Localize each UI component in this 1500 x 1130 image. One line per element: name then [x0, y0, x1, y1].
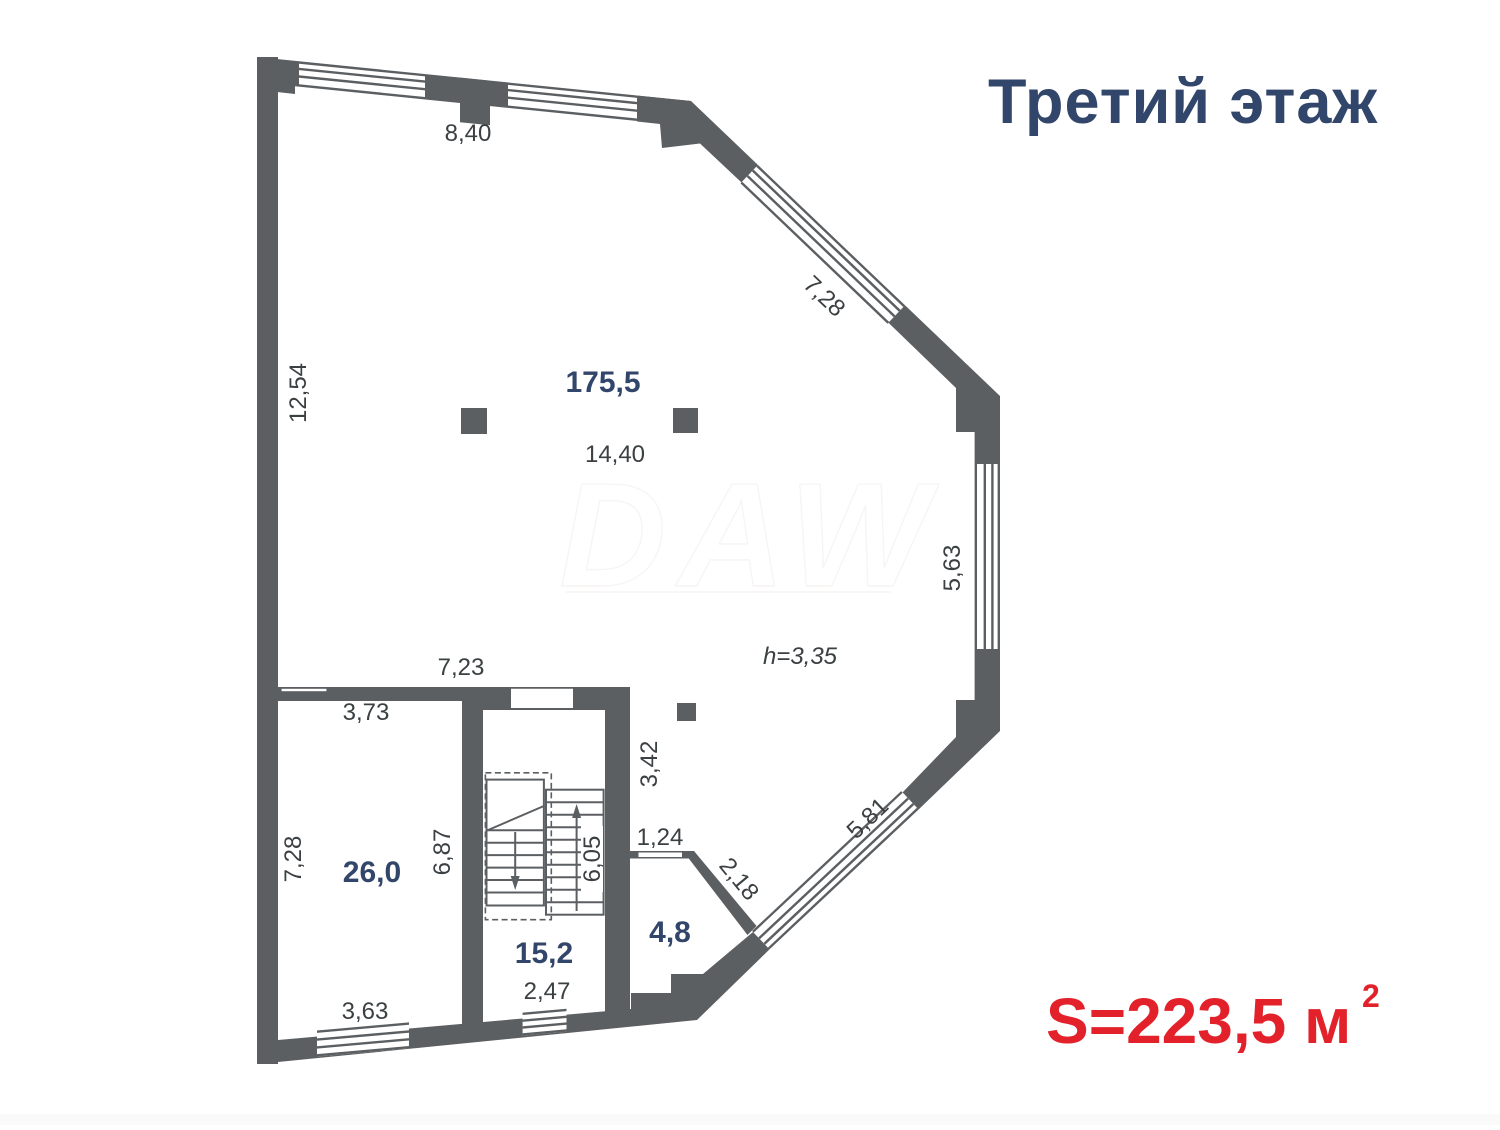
svg-text:h=3,35: h=3,35 [763, 643, 838, 670]
svg-text:175,5: 175,5 [565, 366, 640, 399]
svg-text:12,54: 12,54 [285, 363, 312, 423]
svg-text:S=223,5 м: S=223,5 м [1046, 985, 1351, 1057]
svg-text:3,63: 3,63 [342, 998, 389, 1025]
svg-text:7,23: 7,23 [438, 654, 485, 681]
svg-text:14,40: 14,40 [585, 441, 645, 468]
svg-text:Третий этаж: Третий этаж [988, 67, 1378, 137]
svg-text:2,47: 2,47 [524, 978, 571, 1005]
svg-text:2: 2 [1362, 978, 1380, 1014]
svg-text:DAW: DAW [559, 453, 940, 618]
svg-text:1,24: 1,24 [637, 824, 684, 851]
svg-text:6,87: 6,87 [429, 829, 456, 876]
svg-text:3,73: 3,73 [343, 699, 390, 726]
svg-text:26,0: 26,0 [343, 856, 401, 889]
svg-text:6,05: 6,05 [579, 836, 606, 883]
svg-text:8,40: 8,40 [445, 120, 492, 147]
svg-text:4,8: 4,8 [649, 916, 691, 949]
svg-text:3,42: 3,42 [636, 741, 663, 788]
svg-text:15,2: 15,2 [515, 937, 573, 970]
svg-text:7,28: 7,28 [280, 836, 307, 883]
svg-text:5,63: 5,63 [939, 545, 966, 592]
